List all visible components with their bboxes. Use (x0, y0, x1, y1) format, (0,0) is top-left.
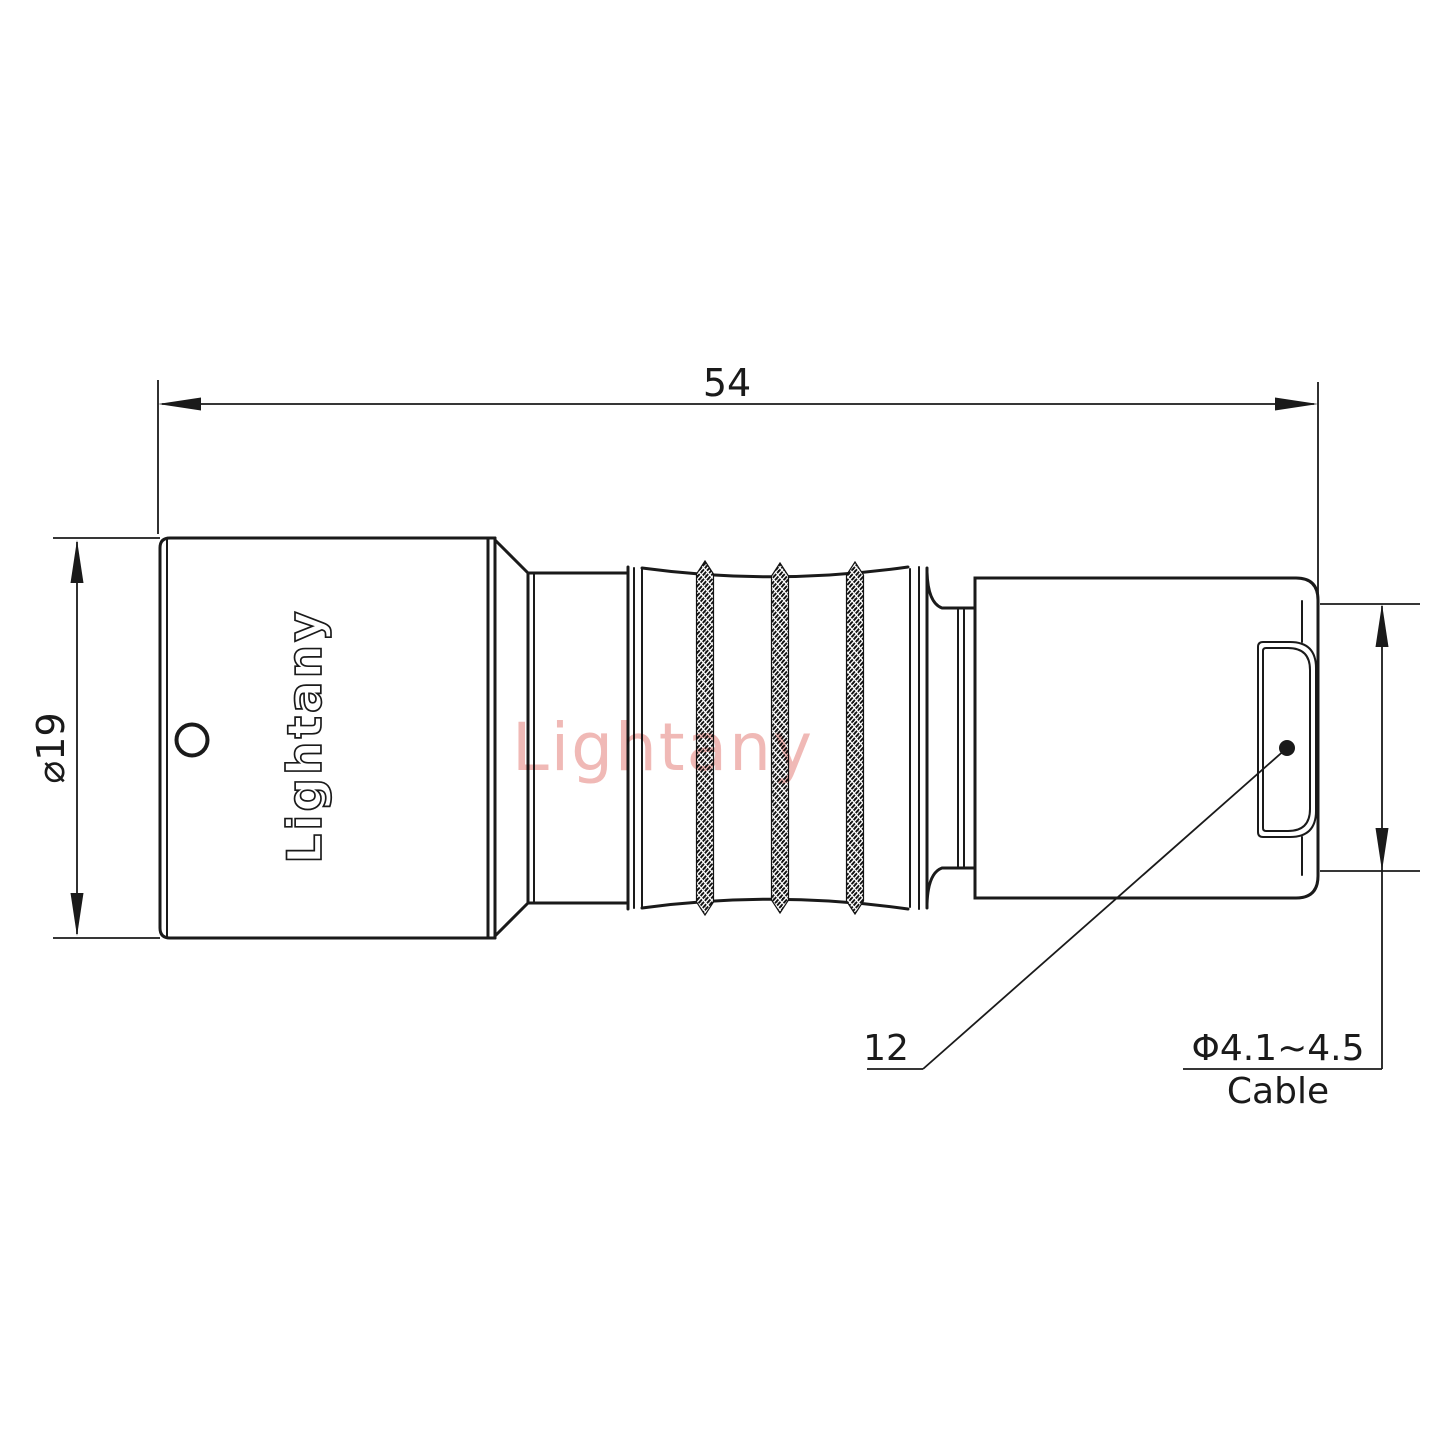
cable-word: Cable (1227, 1071, 1329, 1112)
rear-body (975, 578, 1318, 898)
front-shell: Lightany (160, 538, 495, 938)
brand-text: Lightany (278, 608, 333, 863)
watermark-text: Lightany (512, 709, 814, 786)
dimension-overall-length: 54 (158, 361, 1318, 600)
knurl-band (847, 562, 864, 914)
cable-window-inner (1263, 648, 1310, 831)
shell-hole (177, 725, 208, 756)
drawing-canvas: Lightany (0, 0, 1440, 1440)
boot-ref-value: 12 (863, 1028, 909, 1069)
cable-window-outer (1258, 642, 1316, 837)
neck-groove (958, 608, 964, 868)
outer-diameter-value: ⌀19 (29, 712, 73, 783)
cable-diameter-value: Φ4.1~4.5 (1191, 1028, 1364, 1069)
connector-technical-drawing: Lightany (0, 0, 1440, 1440)
dimension-outer-diameter: ⌀19 (29, 538, 160, 938)
overall-length-value: 54 (703, 361, 751, 405)
